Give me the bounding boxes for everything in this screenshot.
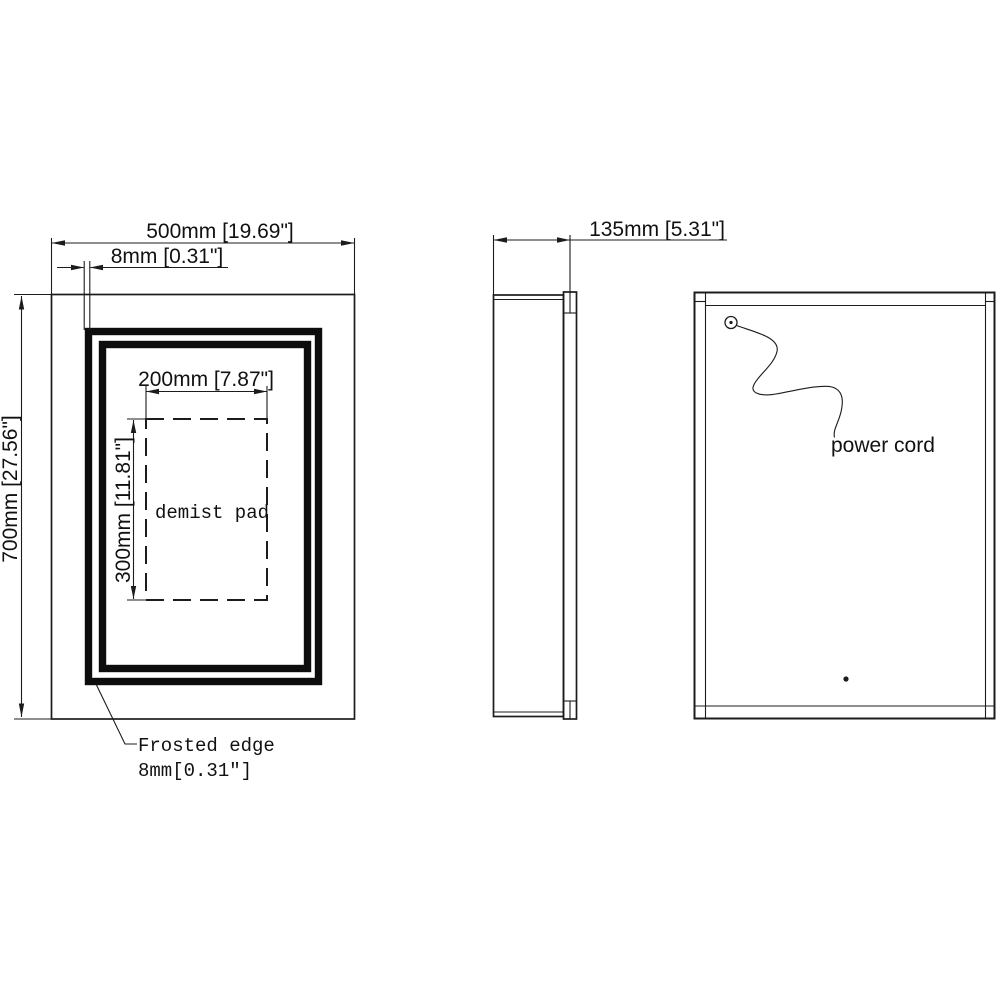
power-cord-label: power cord (831, 434, 935, 457)
back-view: power cord (695, 293, 995, 719)
arrowhead-down (19, 704, 24, 718)
power-cord-squiggle (737, 326, 843, 438)
back-outline (695, 293, 995, 719)
dimension-depth-135mm: 135mm [5.31"] (494, 218, 728, 295)
frosted-edge-callout: Frosted edge 8mm[0.31″] (96, 684, 275, 782)
side-view: 135mm [5.31"] (494, 218, 728, 719)
dimension-height-700mm: 700mm [27.56"] (0, 295, 52, 720)
leader-line (96, 684, 137, 744)
technical-drawing: demist pad 500mm [19.69"] 8mm [0.31"] (0, 0, 1000, 1000)
fixing-hole-dot (843, 676, 848, 681)
dim-label-500mm: 500mm [19.69"] (146, 220, 294, 243)
dim-label-700mm: 700mm [27.56"] (0, 415, 22, 563)
arrowhead-down (131, 586, 136, 599)
dim-label-8mm: 8mm [0.31"] (111, 245, 224, 268)
arrowhead-up (131, 420, 136, 433)
frosted-edge-label: Frosted edge (138, 735, 275, 757)
side-door-strip (564, 292, 577, 719)
demist-pad-label: demist pad (155, 502, 269, 524)
dimension-pad-width-200mm: 200mm [7.87"] (138, 368, 274, 418)
dim-label-300mm: 300mm [11.81"] (112, 437, 135, 583)
arrowhead-up (19, 296, 24, 310)
dimension-pad-height-300mm: 300mm [11.81"] (112, 419, 146, 600)
arrowhead-right-pointing (71, 265, 84, 270)
frosted-edge-size-label: 8mm[0.31″] (138, 760, 252, 782)
arrowhead-left (52, 240, 66, 245)
power-cord-grommet-center (729, 321, 732, 324)
arrowhead-left-pointing (90, 265, 103, 270)
dim-label-200mm: 200mm [7.87"] (138, 368, 274, 391)
arrowhead-right (557, 237, 570, 242)
drawing-canvas: demist pad 500mm [19.69"] 8mm [0.31"] (0, 0, 1000, 1000)
front-view: demist pad 500mm [19.69"] 8mm [0.31"] (0, 220, 355, 782)
arrowhead-right (341, 240, 355, 245)
dimension-edge-8mm: 8mm [0.31"] (57, 245, 228, 330)
side-cabinet-body (494, 295, 564, 717)
dim-label-135mm: 135mm [5.31"] (589, 218, 725, 241)
arrowhead-left (494, 237, 508, 242)
